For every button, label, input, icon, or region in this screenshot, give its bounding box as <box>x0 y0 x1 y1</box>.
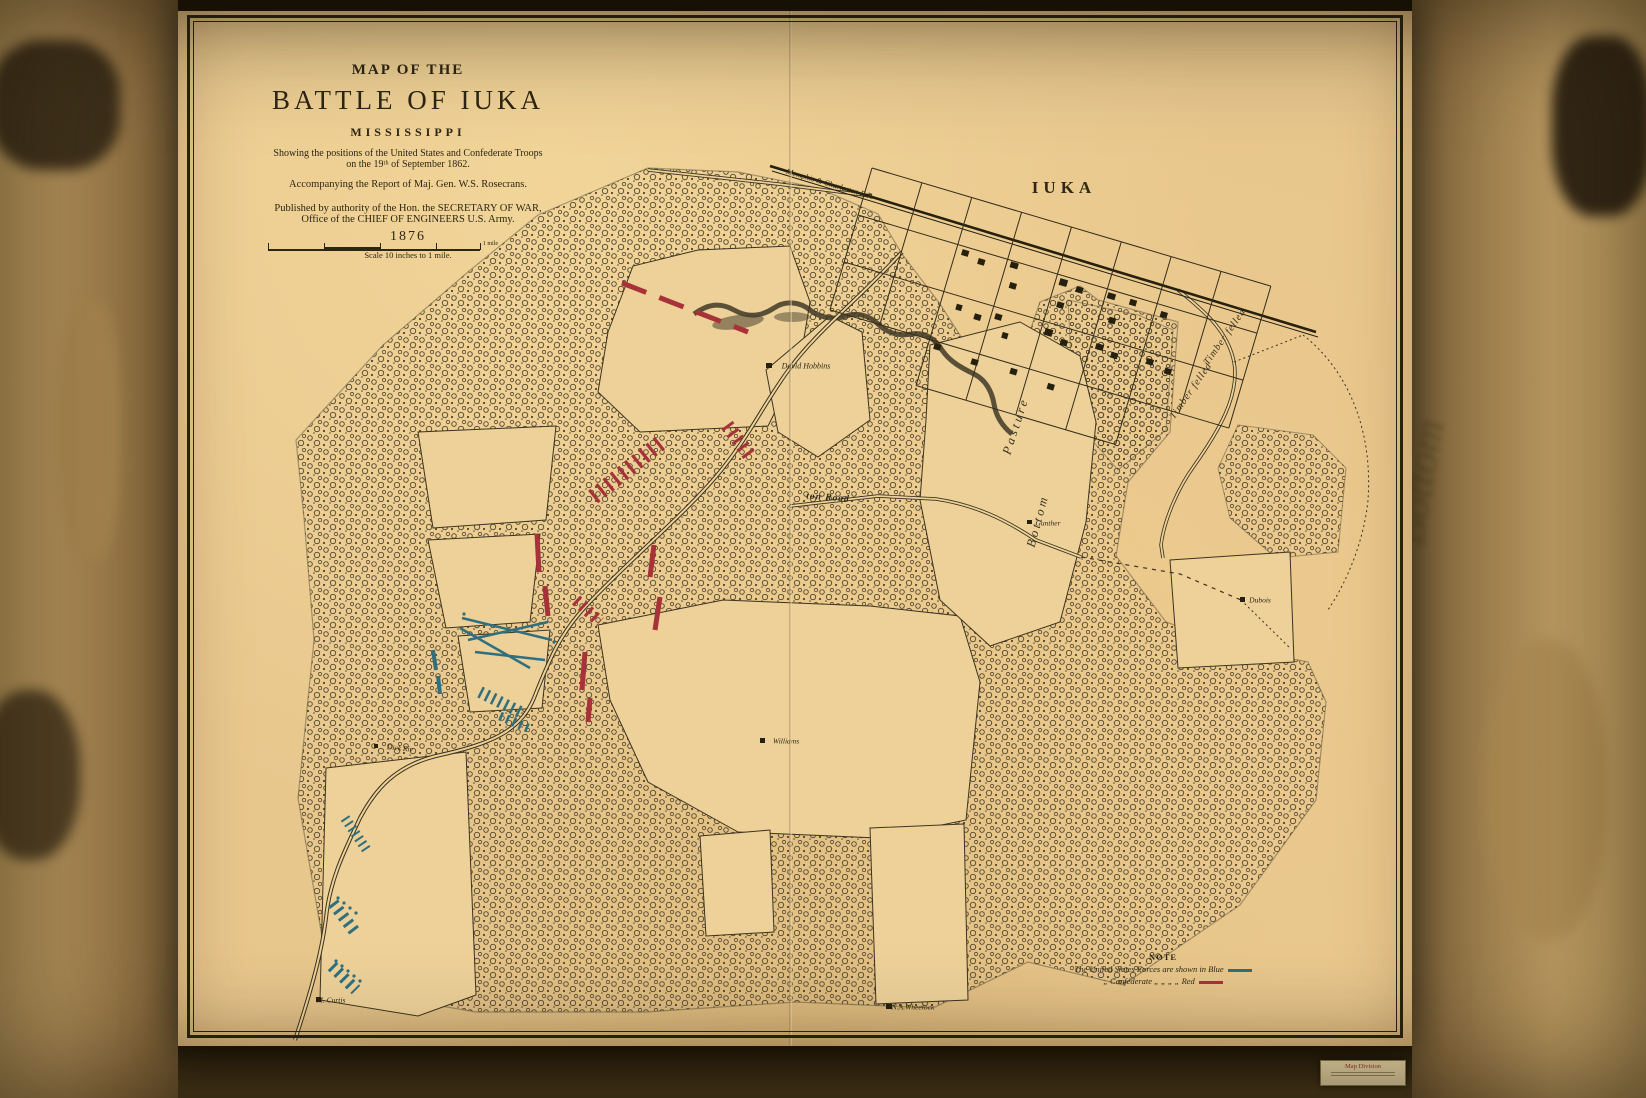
legend-note: NOTE The United States Forces are shown … <box>1058 952 1268 986</box>
background-blot <box>0 690 80 860</box>
sticker-fine-print <box>1331 1072 1395 1078</box>
map-label-iuka: IUKA <box>1032 178 1096 198</box>
woods-clump-ne <box>1218 425 1346 558</box>
field-curtis <box>320 752 476 1016</box>
field <box>418 426 556 528</box>
scale-bar: 1 mile <box>268 243 494 255</box>
confederate-red-swatch <box>1199 981 1223 984</box>
map-subtitle-2: on the 19ᵗʰ of September 1862. <box>218 159 598 170</box>
map-subtitle-1: Showing the positions of the United Stat… <box>218 148 598 159</box>
scale-tick <box>268 243 269 250</box>
background-blot <box>60 300 120 560</box>
background-blot <box>0 40 120 170</box>
scale-tick <box>324 243 325 250</box>
note-union-line: The United States Forces are shown in Bl… <box>1058 964 1268 974</box>
confederate-bar <box>537 534 539 572</box>
title-block: MAP OF THE BATTLE OF IUKA MISSISSIPPI Sh… <box>218 62 598 260</box>
map-title-state: MISSISSIPPI <box>218 125 598 140</box>
scanned-map-photo: Bottom <box>0 0 1646 1098</box>
map-title-line1: MAP OF THE <box>218 62 598 79</box>
union-bar <box>438 676 440 694</box>
confederate-bar <box>588 698 590 722</box>
scale-mile-label: 1 mile <box>483 241 498 247</box>
map-label-gunther: Gunther <box>1036 519 1061 528</box>
confederate-bar <box>582 652 585 690</box>
note-confederate-text: „ Confederate „ „ „ „ Red <box>1103 976 1195 986</box>
background-blot <box>1552 36 1646 216</box>
map-label-dubois: Dubois <box>1249 596 1271 605</box>
paper-fold-crease <box>789 11 792 1046</box>
union-blue-swatch <box>1228 969 1252 972</box>
field-dubois <box>1170 552 1294 668</box>
note-heading: NOTE <box>1058 952 1268 962</box>
field <box>428 534 540 628</box>
field <box>700 830 774 936</box>
house-dubois <box>1240 597 1245 602</box>
field <box>458 630 550 712</box>
map-label-williams: Williams <box>773 737 799 746</box>
scale-tick <box>480 243 481 250</box>
scale-tick <box>436 243 437 250</box>
scale-bar-segment <box>324 247 380 251</box>
library-sticker: Map Division <box>1320 1060 1406 1086</box>
house-dick-riv <box>374 744 378 748</box>
trail-dotted <box>1234 335 1303 362</box>
note-union-text: The United States Forces are shown in Bl… <box>1074 964 1223 974</box>
map-sheet: MAP OF THE BATTLE OF IUKA MISSISSIPPI Sh… <box>178 0 1412 1046</box>
house-david-hobbins <box>766 363 772 368</box>
marsh <box>774 312 810 322</box>
map-published-line2: Office of the CHIEF OF ENGINEERS U.S. Ar… <box>218 214 598 225</box>
sheet-bottom-shadow <box>178 1046 1412 1098</box>
map-label-wheelock: N.A.Wheelock <box>892 1003 934 1012</box>
background-blot <box>1486 640 1606 940</box>
confederate-bar <box>545 586 548 616</box>
sticker-text: Map Division <box>1321 1063 1405 1070</box>
note-confederate-line: „ Confederate „ „ „ „ Red <box>1058 976 1268 986</box>
field-wheelock <box>870 824 968 1004</box>
house-williams <box>760 738 765 743</box>
map-title-main: BATTLE OF IUKA <box>218 85 598 116</box>
map-published-line1: Published by authority of the Hon. the S… <box>218 203 598 214</box>
map-report-line: Accompanying the Report of Maj. Gen. W.S… <box>218 179 598 190</box>
map-label-m-curtis: M. Curtis <box>317 996 346 1005</box>
scale-tick <box>380 243 381 250</box>
